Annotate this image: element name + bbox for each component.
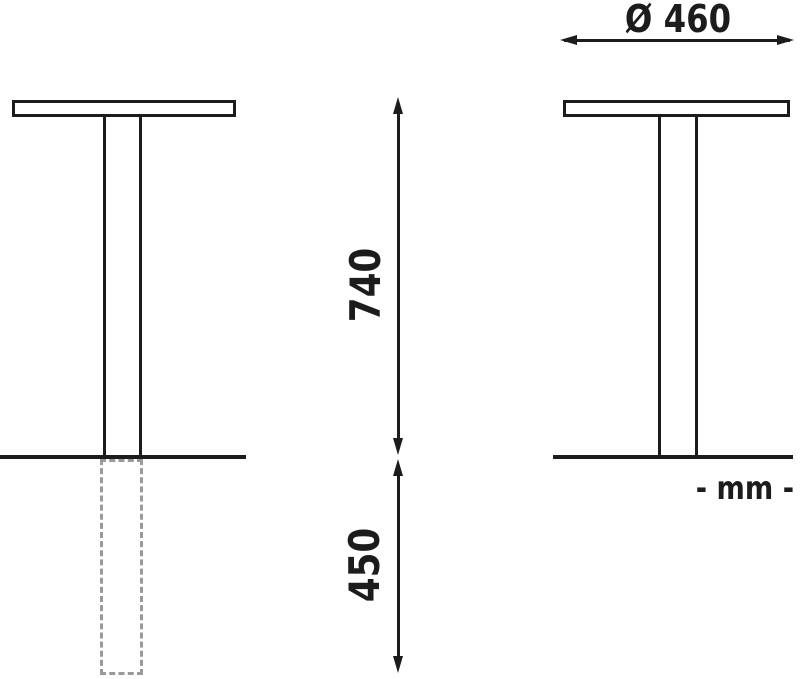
diameter-dimension-line xyxy=(564,39,790,42)
units-note-label: - mm - xyxy=(621,471,794,505)
height-dimension-line xyxy=(397,112,400,440)
right-view-ground-line xyxy=(553,455,793,459)
depth-dimension-label: 450 xyxy=(345,514,385,616)
height-dimension-label: 740 xyxy=(346,234,386,336)
left-view-pedestal-column xyxy=(103,117,142,455)
right-view-tabletop xyxy=(563,100,790,117)
right-view-pedestal-column xyxy=(658,117,698,455)
diameter-dimension-label: Ø 460 xyxy=(579,2,776,36)
technical-drawing: Ø 460 - mm - 740 450 xyxy=(0,0,800,679)
left-view-underground-anchor-hidden-outline xyxy=(100,459,143,675)
arrowhead-right-icon xyxy=(777,35,794,45)
depth-dimension-line xyxy=(397,474,400,658)
arrowhead-down-icon xyxy=(393,656,403,673)
left-view-tabletop xyxy=(12,100,236,117)
arrowhead-left-icon xyxy=(560,35,577,45)
arrowhead-down-icon xyxy=(393,438,403,455)
